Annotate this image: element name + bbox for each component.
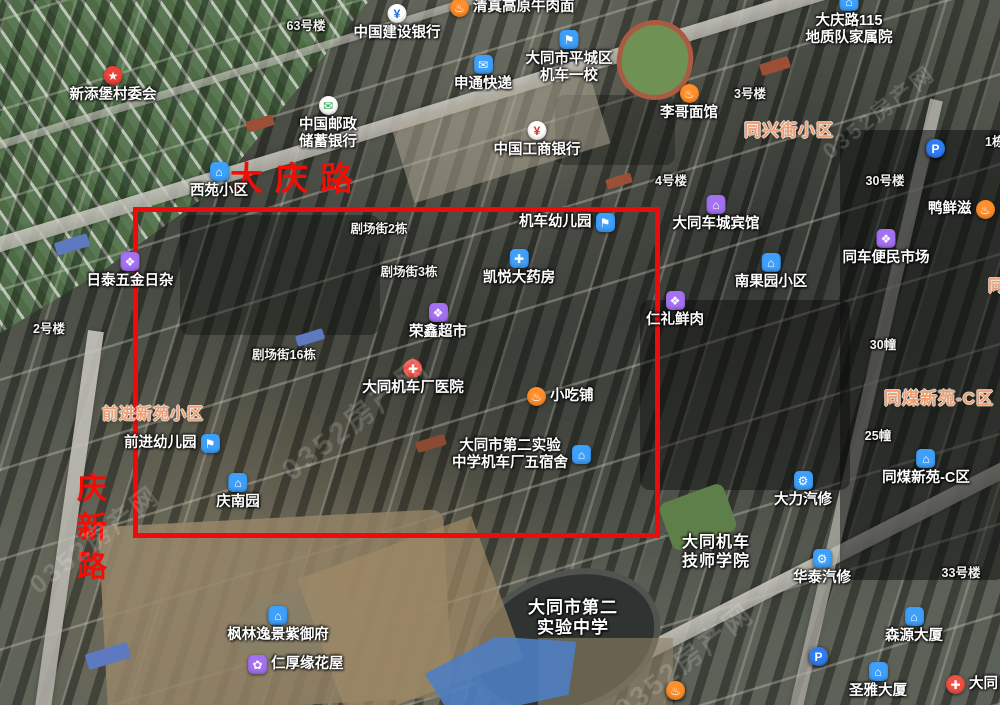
poi-kaiyue-pharmacy-label: 凯悦大药房 xyxy=(483,270,556,287)
poi-label-line: 清真高原牛肉面 xyxy=(473,0,575,16)
express-icon: ✉ xyxy=(474,55,493,74)
poi-label-line: 西苑小区 xyxy=(190,183,248,200)
hotel-icon: ⌂ xyxy=(707,195,726,214)
poi-rongxin-supermarket[interactable]: ❖荣鑫超市 xyxy=(409,303,467,341)
poi-xiyuan-community[interactable]: ⌂西苑小区 xyxy=(190,162,248,200)
label-no2-experimental-school: 大同市第二实验中学 xyxy=(528,598,618,638)
poi-qingzhen-beef-noodle[interactable]: ♨清真高原牛肉面 xyxy=(450,0,575,17)
bldg-2: 2号楼 xyxy=(33,318,65,337)
poi-label-line: 华泰汽修 xyxy=(793,570,851,587)
poi-qingnanyuan-label: 庆南园 xyxy=(216,494,260,511)
bldg-juchangjie-16: 剧场街16栋 xyxy=(252,344,316,363)
residence-icon: ⌂ xyxy=(269,606,288,625)
poi-ccb-bank-label: 中国建设银行 xyxy=(354,25,441,42)
poi-huatai-auto-repair[interactable]: ⚙华泰汽修 xyxy=(793,549,851,587)
poi-label-line: 庆南园 xyxy=(216,494,260,511)
poi-tongmei-xinyuan-c[interactable]: ⌂同煤新苑-C区 xyxy=(882,449,970,487)
poi-label-line: 中国建设银行 xyxy=(354,25,441,42)
poi-lige-noodle-shop-label: 李哥面馆 xyxy=(660,105,718,122)
pharmacy-icon: ✚ xyxy=(510,249,529,268)
parking-icon: P xyxy=(809,647,828,666)
poi-hospital-partial-right-label: 大同 xyxy=(969,676,998,693)
poi-xiaochipu-label: 小吃铺 xyxy=(550,388,594,405)
poi-shengya-tower[interactable]: ⌂圣雅大厦 xyxy=(849,662,907,700)
dark-blocks-center xyxy=(640,300,850,490)
poi-xiyuan-community-label: 西苑小区 xyxy=(190,183,248,200)
bldg-30zhuang: 30幢 xyxy=(870,334,896,353)
poi-renli-butcher[interactable]: ❖仁礼鲜肉 xyxy=(646,291,704,329)
rust-roof xyxy=(605,172,633,189)
poi-pingchengqu-jiche-school[interactable]: ⚑大同市平城区机车一校 xyxy=(526,30,613,84)
poi-sto-express[interactable]: ✉申通快递 xyxy=(454,55,512,93)
poi-label-line: 荣鑫超市 xyxy=(409,324,467,341)
poi-label-line: 日泰五金日杂 xyxy=(87,273,174,290)
poi-label-line: 凯悦大药房 xyxy=(483,270,556,287)
poi-datong-checheng-hotel[interactable]: ⌂大同车城宾馆 xyxy=(673,195,760,233)
poi-label-line: 同车便民市场 xyxy=(843,250,930,267)
poi-hospital-partial-right[interactable]: ✚大同 xyxy=(946,675,998,694)
poi-yaxianzi[interactable]: 鸭鲜滋♨ xyxy=(928,200,995,219)
poi-nanguoyuan-community-label: 南果园小区 xyxy=(735,274,808,291)
place-name-line: 大同市第二 xyxy=(528,598,618,618)
poi-jiche-kindergarten-label: 机车幼儿园 xyxy=(519,214,592,231)
poi-jiche-kindergarten[interactable]: 机车幼儿园⚑ xyxy=(519,213,615,232)
poi-xiaochipu[interactable]: ♨小吃铺 xyxy=(527,387,594,406)
poi-qingzhen-beef-noodle-label: 清真高原牛肉面 xyxy=(473,0,575,16)
poi-no2-school-jichechang-dorm-label: 大同市第二实验中学机车厂五宿舍 xyxy=(452,438,568,471)
poi-kaiyue-pharmacy[interactable]: ✚凯悦大药房 xyxy=(483,249,556,287)
poi-label-line: 中国邮政 xyxy=(299,117,357,134)
poi-datong-checheng-hotel-label: 大同车城宾馆 xyxy=(673,216,760,233)
poi-label-line: 申通快递 xyxy=(454,76,512,93)
label-jiche-jishi-xueyuan: 大同机车技师学院 xyxy=(682,533,750,571)
poi-label-line: 仁礼鲜肉 xyxy=(646,312,704,329)
star-icon: ★ xyxy=(104,66,123,85)
poi-label-line: 中国工商银行 xyxy=(494,142,581,159)
residence-icon: ⌂ xyxy=(229,473,248,492)
poi-nanguoyuan-community[interactable]: ⌂南果园小区 xyxy=(735,253,808,291)
place-name-line: 技师学院 xyxy=(682,552,750,571)
poi-huatai-auto-repair-label: 华泰汽修 xyxy=(793,570,851,587)
poi-label-line: 森源大厦 xyxy=(885,628,943,645)
poi-psbc-bank-label: 中国邮政储蓄银行 xyxy=(299,117,357,150)
dark-towers-east xyxy=(840,130,1000,580)
bank-icon: ¥ xyxy=(528,121,547,140)
road-label-daqing: 大庆路 xyxy=(230,152,365,200)
school-flag-icon: ⚑ xyxy=(560,30,579,49)
poi-parking-south[interactable]: P xyxy=(809,647,828,666)
cart-icon: ❖ xyxy=(429,303,448,322)
bldg-33: 33号楼 xyxy=(942,562,981,581)
poi-ccb-bank[interactable]: ¥中国建设银行 xyxy=(354,4,441,42)
restaurant-icon: ♨ xyxy=(976,200,995,219)
poi-label-line: 李哥面馆 xyxy=(660,105,718,122)
poi-ritai-hardware-store[interactable]: ❖日泰五金日杂 xyxy=(87,252,174,290)
hospital-cross-icon: ✚ xyxy=(946,675,965,694)
poi-no2-school-jichechang-dorm[interactable]: 大同市第二实验中学机车厂五宿舍⌂ xyxy=(452,438,591,471)
bldg-1dong: 1栋 xyxy=(985,131,1000,150)
poi-label-line: 大庆路115 xyxy=(816,13,883,30)
place-name-line: 大同机车 xyxy=(682,533,750,552)
poi-label-line: 大同车城宾馆 xyxy=(673,216,760,233)
bank-icon: ¥ xyxy=(388,4,407,23)
poi-tongche-convenience-market-label: 同车便民市场 xyxy=(843,250,930,267)
poi-label-line: 机车幼儿园 xyxy=(519,214,592,231)
poi-label-line: 仁厚缘花屋 xyxy=(271,656,344,673)
zone-qianjin-xinyuan: 前进新苑小区 xyxy=(102,400,204,424)
car-repair-icon: ⚙ xyxy=(813,549,832,568)
zone-partial-right-edge: 同 xyxy=(988,272,1000,296)
poi-renli-butcher-label: 仁礼鲜肉 xyxy=(646,312,704,329)
restaurant-icon: ♨ xyxy=(450,0,469,17)
poi-label-line: 储蓄银行 xyxy=(299,134,357,151)
poi-label-line: 地质队家属院 xyxy=(806,30,893,47)
poi-psbc-bank[interactable]: ✉中国邮政储蓄银行 xyxy=(299,96,357,150)
bldg-4: 4号楼 xyxy=(655,170,687,189)
car-repair-icon: ⚙ xyxy=(794,471,813,490)
bldg-3: 3号楼 xyxy=(734,83,766,102)
poi-label-line: 新添堡村委会 xyxy=(70,87,157,104)
poi-label-line: 大力汽修 xyxy=(774,492,832,509)
flower-icon: ✿ xyxy=(248,655,267,674)
poi-qianjin-kindergarten[interactable]: 前进幼儿园⚑ xyxy=(124,434,220,453)
poi-daqinglu-115-dizhidui-label: 大庆路115地质队家属院 xyxy=(806,13,893,46)
bldg-25zhuang: 25幢 xyxy=(865,425,891,444)
poi-label-line: 前进幼儿园 xyxy=(124,435,197,452)
poi-label-line: 南果园小区 xyxy=(735,274,808,291)
poi-parking-northeast[interactable]: P xyxy=(926,139,945,158)
bldg-juchangjie-3: 剧场街3栋 xyxy=(381,261,438,280)
kindergarten-flag-icon: ⚑ xyxy=(201,434,220,453)
bldg-63: 63号楼 xyxy=(287,15,326,34)
poi-label-line: 中学机车厂五宿舍 xyxy=(452,455,568,472)
poi-senyuan-tower-label: 森源大厦 xyxy=(885,628,943,645)
residence-icon: ⌂ xyxy=(917,449,936,468)
poi-senyuan-tower[interactable]: ⌂森源大厦 xyxy=(885,607,943,645)
poi-renhouyuan-flower-shop-label: 仁厚缘花屋 xyxy=(271,656,344,673)
poi-qianjin-kindergarten-label: 前进幼儿园 xyxy=(124,435,197,452)
residence-icon: ⌂ xyxy=(762,253,781,272)
poi-yaxianzi-label: 鸭鲜滋 xyxy=(928,201,972,218)
poi-fenglin-yijing-ziyufu-label: 枫林逸景紫御府 xyxy=(227,627,329,644)
poi-icbc-bank[interactable]: ¥中国工商银行 xyxy=(494,121,581,159)
poi-label-line: 机车一校 xyxy=(540,68,598,85)
poi-dali-auto-repair[interactable]: ⚙大力汽修 xyxy=(774,471,832,509)
poi-label-line: 圣雅大厦 xyxy=(849,683,907,700)
postal-bank-icon: ✉ xyxy=(319,96,338,115)
poi-tongmei-xinyuan-c-label: 同煤新苑-C区 xyxy=(882,470,970,487)
poi-shengya-tower-label: 圣雅大厦 xyxy=(849,683,907,700)
restaurant-icon: ♨ xyxy=(680,84,699,103)
poi-xintianbao-village-committee-label: 新添堡村委会 xyxy=(70,87,157,104)
poi-label-line: 枫林逸景紫御府 xyxy=(227,627,329,644)
residence-icon: ⌂ xyxy=(210,162,229,181)
poi-sto-express-label: 申通快递 xyxy=(454,76,512,93)
poi-daqinglu-115-dizhidui[interactable]: ⌂大庆路115地质队家属院 xyxy=(806,0,893,46)
building-icon: ⌂ xyxy=(905,607,924,626)
rust-roof xyxy=(759,56,791,76)
poi-label-line: 大同市平城区 xyxy=(526,51,613,68)
satellite-map-canvas[interactable]: 大庆路 庆新路 ★新添堡村委会¥中国建设银行♨清真高原牛肉面✉申通快递⚑大同市平… xyxy=(0,0,1000,705)
poi-icbc-bank-label: 中国工商银行 xyxy=(494,142,581,159)
poi-lige-noodle-shop[interactable]: ♨李哥面馆 xyxy=(660,84,718,122)
kindergarten-flag-icon: ⚑ xyxy=(596,213,615,232)
poi-fenglin-yijing-ziyufu[interactable]: ⌂枫林逸景紫御府 xyxy=(227,606,329,644)
poi-xintianbao-village-committee[interactable]: ★新添堡村委会 xyxy=(70,66,157,104)
parking-icon: P xyxy=(926,139,945,158)
building-icon: ⌂ xyxy=(869,662,888,681)
bldg-juchangjie-2: 剧场街2栋 xyxy=(351,218,408,237)
poi-rongxin-supermarket-label: 荣鑫超市 xyxy=(409,324,467,341)
zone-tongmei-xinyuan-c: 同煤新苑-C区 xyxy=(884,384,994,409)
shop-icon: ❖ xyxy=(121,252,140,271)
butcher-icon: ❖ xyxy=(666,291,685,310)
poi-label-line: 同煤新苑-C区 xyxy=(882,470,970,487)
poi-dali-auto-repair-label: 大力汽修 xyxy=(774,492,832,509)
place-name-line: 实验中学 xyxy=(537,618,609,638)
poi-qingnanyuan[interactable]: ⌂庆南园 xyxy=(216,473,260,511)
poi-label-line: 小吃铺 xyxy=(550,388,594,405)
poi-label-line: 鸭鲜滋 xyxy=(928,201,972,218)
poi-label-line: 大同市第二实验 xyxy=(459,438,561,455)
poi-renhouyuan-flower-shop[interactable]: ✿仁厚缘花屋 xyxy=(248,655,344,674)
residence-icon: ⌂ xyxy=(572,445,591,464)
poi-label-line: 大同 xyxy=(969,676,998,693)
restaurant-icon: ♨ xyxy=(527,387,546,406)
poi-ritai-hardware-store-label: 日泰五金日杂 xyxy=(87,273,174,290)
residence-icon: ⌂ xyxy=(840,0,859,11)
poi-tongche-convenience-market[interactable]: ❖同车便民市场 xyxy=(843,229,930,267)
market-icon: ❖ xyxy=(877,229,896,248)
bldg-30: 30号楼 xyxy=(866,170,905,189)
poi-pingchengqu-jiche-school-label: 大同市平城区机车一校 xyxy=(526,51,613,84)
